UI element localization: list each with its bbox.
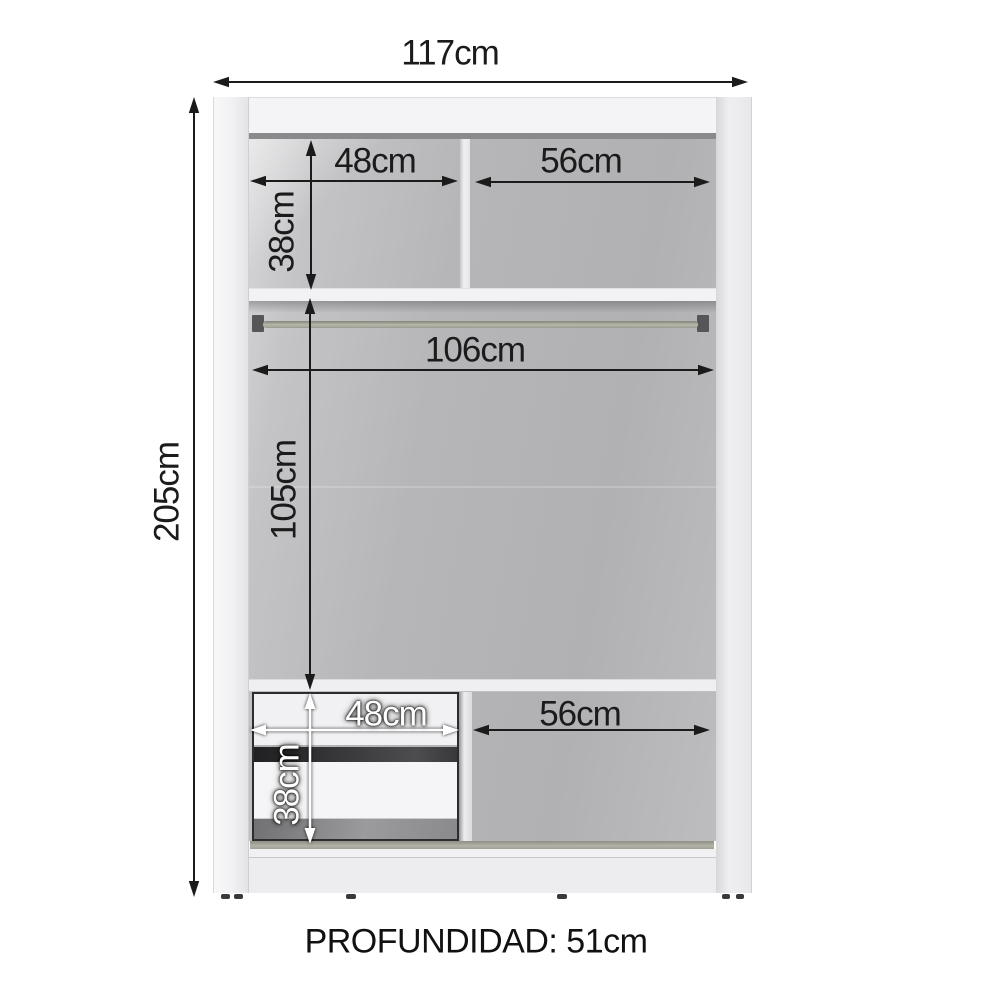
cabinet-foot <box>346 894 356 899</box>
label-hanging-height: 105cm <box>267 440 302 540</box>
bottom-rail <box>250 841 714 849</box>
cabinet-top-panel <box>249 97 716 133</box>
cabinet-foot <box>736 894 744 899</box>
label-overall-height: 205cm <box>150 442 185 542</box>
label-bottom-right-width: 56cm <box>539 697 621 732</box>
upper-shelf-shadow <box>249 301 716 313</box>
hanging-rod <box>263 321 698 328</box>
interior-corner-highlight <box>249 139 716 299</box>
label-drawer-width: 48cm <box>345 697 427 732</box>
label-rod-width: 106cm <box>425 333 525 368</box>
top-shelf-divider <box>460 139 470 288</box>
bottom-divider-panel <box>459 692 472 841</box>
cabinet-foot <box>722 894 730 899</box>
label-overall-width: 117cm <box>401 36 498 71</box>
wardrobe-dimension-diagram: 117cm 205cm 48cm 56cm 38cm 106cm 105cm 4… <box>0 0 1000 1000</box>
hanging-rod-right-bracket <box>697 315 709 332</box>
back-panel-seam <box>249 486 716 488</box>
lower-shelf-board <box>249 679 716 692</box>
depth-note: PROFUNDIDAD: 51cm <box>305 923 648 962</box>
base-plinth <box>249 857 716 893</box>
cabinet-foot <box>234 894 243 899</box>
cabinet-left-side-panel <box>213 97 249 893</box>
upper-shelf-board <box>249 288 716 301</box>
label-top-left-width: 48cm <box>334 144 416 179</box>
cabinet-floor-board <box>249 849 716 857</box>
cabinet-foot <box>221 894 230 899</box>
cabinet-right-side-panel <box>716 97 752 893</box>
label-top-height: 38cm <box>265 191 300 273</box>
arrow-overall-width <box>213 77 748 87</box>
label-top-right-width: 56cm <box>540 144 622 179</box>
cabinet-foot <box>557 894 567 899</box>
arrow-overall-height <box>189 97 199 897</box>
label-drawer-height: 38cm <box>270 744 305 826</box>
